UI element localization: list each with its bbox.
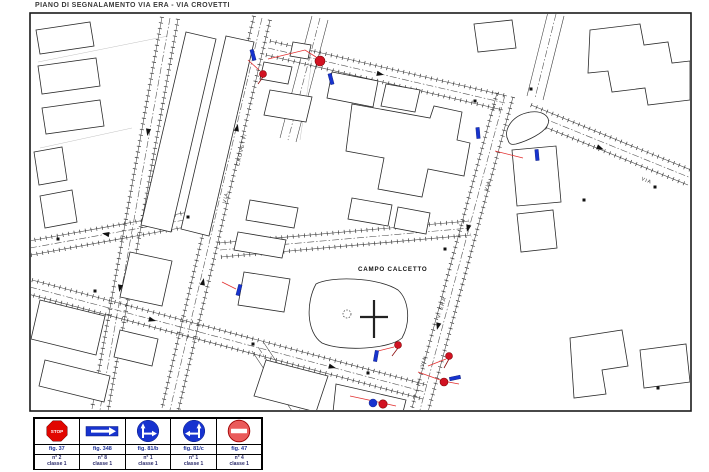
legend-count-cell: n° 1 classe 1: [170, 454, 217, 470]
red-sign-marker: [446, 353, 453, 360]
legend: STOP fig. 37 n° 2 classe 1 fig. 348 n° 8…: [33, 417, 263, 470]
building-footprint: [42, 100, 104, 134]
building-footprint: [327, 72, 378, 107]
red-sign-marker: [395, 342, 402, 349]
one-way-sign-marker: [373, 350, 378, 361]
legend-column: STOP fig. 37 n° 2 classe 1: [34, 418, 80, 469]
building-footprint: [38, 58, 100, 94]
building-footprint: [238, 272, 290, 312]
building-footprint: [333, 384, 406, 412]
building-footprint: [120, 252, 172, 306]
one-way-sign-icon: [82, 419, 122, 443]
building-footprint: [517, 210, 557, 252]
svg-text:STOP: STOP: [51, 429, 63, 434]
street-label: VIA: [420, 356, 429, 368]
straight-or-right-sign-icon: [128, 419, 168, 443]
building-footprint: [234, 232, 286, 258]
one-way-sign-marker: [476, 127, 480, 138]
building-footprint: [394, 207, 430, 234]
building-footprint: [34, 147, 67, 185]
area-label: CAMPO CALCETTO: [358, 266, 428, 273]
building-footprint: [640, 344, 690, 388]
blue-sign-marker: [369, 399, 377, 407]
red-sign-marker: [260, 71, 267, 78]
building-footprint: [348, 198, 392, 226]
one-way-sign-marker: [535, 149, 539, 160]
building-footprint: [570, 330, 628, 398]
legend-count-cell: n° 4 classe 1: [216, 454, 263, 470]
legend-count-cell: n° 1 classe 1: [125, 454, 172, 470]
street-label: VIA: [640, 176, 652, 186]
street-label: VIA: [222, 192, 230, 204]
building-footprint: [264, 90, 312, 122]
building-footprint: [246, 200, 298, 228]
school-building: [346, 104, 470, 197]
stop-sign-icon: STOP: [37, 419, 77, 443]
red-sign-marker: [379, 400, 387, 408]
building-footprint: [114, 330, 158, 366]
legend-column: fig. 81/b n° 1 classe 1: [125, 418, 171, 469]
legend-count-cell: n° 8 classe 1: [79, 454, 126, 470]
building-footprint: [36, 22, 94, 54]
straight-or-left-sign-icon: [174, 419, 214, 443]
legend-column: fig. 47 n° 4 classe 1: [216, 418, 262, 469]
building-footprint: [254, 360, 328, 412]
building-footprint: [588, 24, 690, 105]
street-label: CROVETTI: [235, 133, 248, 167]
red-sign-marker: [440, 378, 448, 386]
legend-column: fig. 348 n° 8 classe 1: [80, 418, 126, 469]
building-footprint: [290, 42, 311, 59]
traffic-island: [507, 112, 549, 145]
building-footprint: [381, 84, 420, 112]
building-footprint: [31, 300, 105, 355]
building-footprint: [474, 20, 516, 52]
legend-column: fig. 81/c n° 1 classe 1: [171, 418, 217, 469]
building-footprint: [40, 190, 77, 228]
signage-plan-map: CROVETTI VIA V. ERA VIA VIA VIA CAMPO CA…: [0, 0, 709, 472]
no-entry-sign-icon: [219, 419, 259, 443]
buildings: [31, 20, 690, 412]
stop-sign-marker: [315, 56, 325, 66]
legend-count-cell: n° 2 classe 1: [34, 454, 81, 470]
campo-calcetto-field: [309, 279, 408, 348]
one-way-sign-marker: [449, 375, 460, 381]
